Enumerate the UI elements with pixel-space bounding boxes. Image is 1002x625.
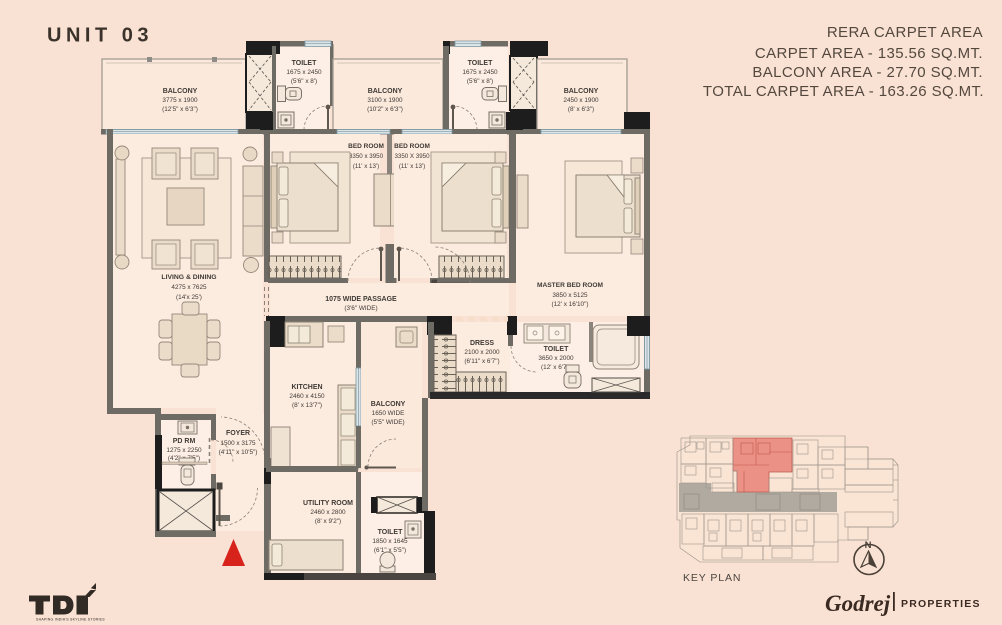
svg-text:3100 x 1900: 3100 x 1900	[367, 97, 403, 104]
svg-text:3850 x 5125: 3850 x 5125	[552, 292, 588, 299]
svg-text:BED ROOM: BED ROOM	[348, 143, 384, 150]
svg-text:3350 x 3950: 3350 x 3950	[349, 153, 384, 160]
svg-text:PROPERTIES: PROPERTIES	[901, 598, 981, 610]
svg-text:(11' x 13'): (11' x 13')	[353, 163, 379, 170]
svg-text:BED ROOM: BED ROOM	[394, 143, 430, 150]
svg-text:LIVING & DINING: LIVING & DINING	[161, 274, 216, 281]
svg-text:2100 x 2000: 2100 x 2000	[464, 349, 500, 356]
svg-text:BALCONY: BALCONY	[564, 88, 599, 95]
svg-text:3650 x 2000: 3650 x 2000	[538, 355, 574, 362]
svg-text:BALCONY: BALCONY	[371, 401, 406, 408]
svg-text:(14'x 25'): (14'x 25')	[176, 294, 202, 301]
svg-text:(8' x 6'3"): (8' x 6'3")	[568, 106, 594, 113]
svg-text:3350 X 3950: 3350 X 3950	[394, 153, 430, 160]
svg-text:(8' x 13'7"): (8' x 13'7")	[292, 402, 322, 409]
svg-text:BALCONY: BALCONY	[368, 88, 403, 95]
svg-text:Godrej: Godrej	[825, 591, 891, 616]
svg-text:CARPET AREA - 135.56 SQ.MT.: CARPET AREA - 135.56 SQ.MT.	[755, 45, 983, 62]
svg-text:(5'6" x 8'): (5'6" x 8')	[467, 78, 493, 85]
svg-text:N: N	[865, 540, 872, 551]
svg-text:2460 x 2800: 2460 x 2800	[310, 509, 346, 516]
svg-text:BALCONY: BALCONY	[163, 88, 198, 95]
svg-text:(5'5" WIDE): (5'5" WIDE)	[371, 419, 404, 426]
svg-text:3775 x 1900: 3775 x 1900	[162, 97, 198, 104]
svg-text:(6'11" x 6'7"): (6'11" x 6'7")	[464, 358, 499, 365]
svg-text:1075 WIDE PASSAGE: 1075 WIDE PASSAGE	[325, 296, 397, 303]
svg-text:SHAPING INDIA'S SKYLINE STORIE: SHAPING INDIA'S SKYLINE STORIES	[36, 618, 105, 622]
svg-text:KITCHEN: KITCHEN	[291, 384, 322, 391]
svg-text:DRESS: DRESS	[470, 340, 494, 347]
svg-text:PD RM: PD RM	[173, 438, 196, 445]
svg-text:4275 x 7625: 4275 x 7625	[171, 284, 207, 291]
svg-text:(3'6" WIDE): (3'6" WIDE)	[344, 305, 377, 312]
svg-text:(10'2" x 6'3"): (10'2" x 6'3")	[367, 106, 403, 113]
svg-text:1675 x 2450: 1675 x 2450	[286, 69, 322, 76]
svg-text:(12' x 16'10"): (12' x 16'10")	[551, 301, 588, 308]
svg-text:(11' x 13'): (11' x 13')	[399, 163, 425, 170]
svg-text:TOTAL CARPET AREA - 163.26 SQ.: TOTAL CARPET AREA - 163.26 SQ.MT.	[703, 83, 984, 100]
svg-text:BALCONY AREA - 27.70 SQ.MT.: BALCONY AREA - 27.70 SQ.MT.	[752, 64, 983, 81]
svg-text:UNIT 03: UNIT 03	[47, 25, 153, 47]
svg-text:(12'5" x 6'3"): (12'5" x 6'3")	[162, 106, 198, 113]
svg-text:1850 x 1645: 1850 x 1645	[372, 538, 408, 545]
svg-text:RERA CARPET AREA: RERA CARPET AREA	[827, 24, 983, 41]
svg-text:1675 x 2450: 1675 x 2450	[462, 69, 498, 76]
svg-text:MASTER BED ROOM: MASTER BED ROOM	[537, 282, 603, 289]
svg-text:TOILET: TOILET	[468, 60, 493, 67]
svg-text:(5'6" x 8'): (5'6" x 8')	[291, 78, 317, 85]
svg-text:2460 x 4150: 2460 x 4150	[289, 393, 325, 400]
svg-text:KEY PLAN: KEY PLAN	[683, 572, 741, 584]
svg-text:2450 x 1900: 2450 x 1900	[563, 97, 599, 104]
svg-text:(8' x 9'2"): (8' x 9'2")	[315, 518, 341, 525]
svg-text:UTILITY ROOM: UTILITY ROOM	[303, 500, 353, 507]
svg-text:FOYER: FOYER	[226, 430, 250, 437]
svg-text:1275 x 2250: 1275 x 2250	[166, 447, 202, 454]
svg-text:TOILET: TOILET	[378, 529, 403, 536]
svg-text:1650 WIDE: 1650 WIDE	[372, 410, 405, 417]
svg-text:(4'11" x 10'5"): (4'11" x 10'5")	[219, 449, 258, 456]
svg-text:TOILET: TOILET	[544, 346, 569, 353]
svg-text:TOILET: TOILET	[292, 60, 317, 67]
